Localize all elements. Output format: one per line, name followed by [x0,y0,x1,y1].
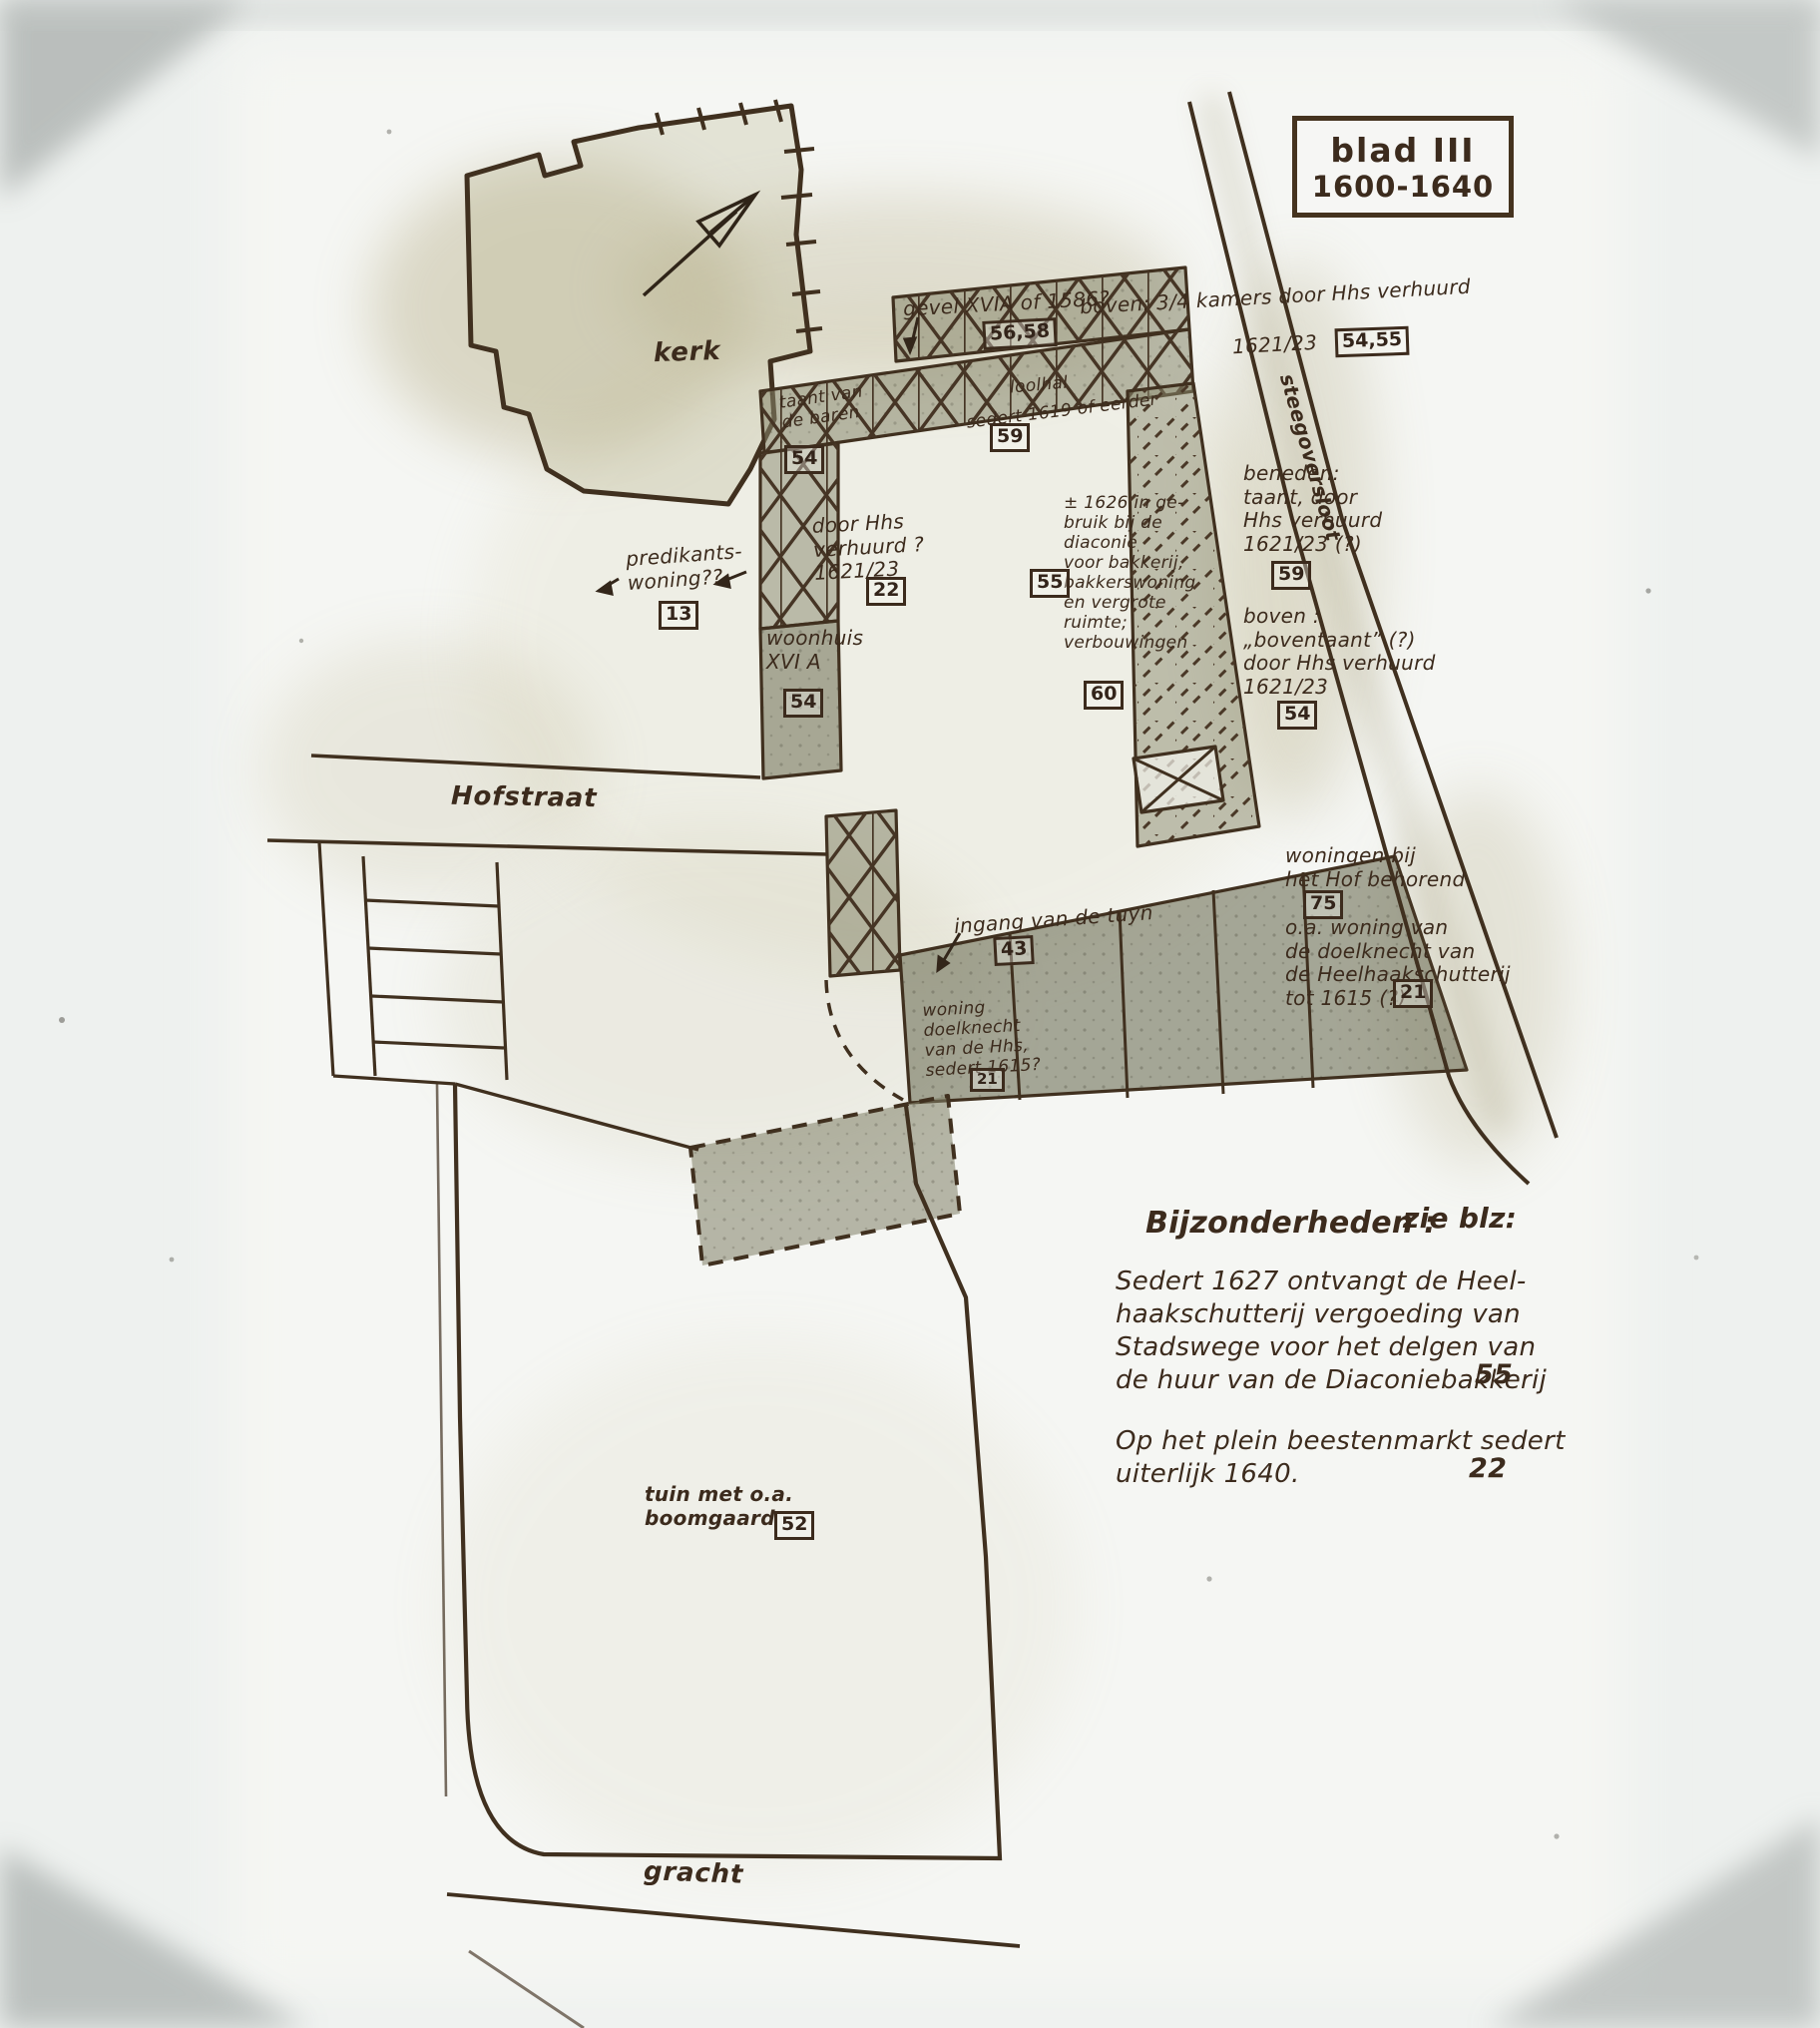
ref-box-courtyard: 55 [1030,569,1070,598]
annotation-boven-taant: boven : „boventaant” (?) door Hhs verhuu… [1243,605,1436,699]
corner-block [1134,747,1223,812]
ref-box-ingang: 43 [993,935,1035,966]
note-item-1-page: 55 [1475,1359,1513,1391]
ref-box-boven-kamers: 54,55 [1335,326,1410,357]
ref-box-boven-taant: 54 [1277,701,1317,730]
ref-box-loolhal: 59 [990,423,1030,452]
scanned-map-page: blad III 1600-1640 kerk Hofstraat gracht… [0,0,1820,2028]
ref-box-door-hhs: 22 [866,577,906,606]
note-item-2-page: 22 [1469,1453,1507,1485]
annotation-diaconie: ± 1626 in ge- bruik bij de diaconie voor… [1064,493,1195,653]
ref-box-oa-woning: 21 [1393,979,1433,1008]
ref-box-tuin: 52 [774,1511,814,1540]
notes-header: Bijzonderheden : [1145,1206,1437,1241]
title-box: blad III 1600-1640 [1292,116,1514,218]
ref-box-taant-baren: 54 [784,445,824,474]
label-hofstraat: Hofstraat [451,781,598,814]
annotation-tuin: tuin met o.a. boomgaard [645,1483,793,1530]
title-line2: 1600-1640 [1312,170,1494,204]
notes-see-header: zie blz: [1403,1202,1517,1235]
ref-box-diaconie: 60 [1084,681,1124,710]
title-line1: blad III [1330,131,1475,170]
annotation-woningen-hof: woningen bij het Hof behorend [1285,844,1465,891]
gate-block [826,810,900,976]
annotation-door-hhs: door Hhs verhuurd ? 1621/23 [811,509,926,586]
ref-box-beneden: 59 [1271,561,1311,590]
annotation-beneden: beneden: taant, door Hhs verhuurd 1621/2… [1243,462,1382,556]
label-gracht: gracht [643,1856,743,1890]
ref-box-woonhuis: 54 [783,689,823,718]
ref-box-predikants: 13 [659,601,698,630]
annotation-boven-kamers-year: 1621/23 [1231,331,1317,359]
annotation-predikants: predikants- woning?? [625,540,744,595]
label-kerk: kerk [653,336,720,369]
ref-box-gevel: 56,58 [982,317,1058,350]
annotation-woonhuis: woonhuis XVI A [766,627,863,674]
ref-box-woning-doelknecht: 21 [970,1068,1005,1092]
